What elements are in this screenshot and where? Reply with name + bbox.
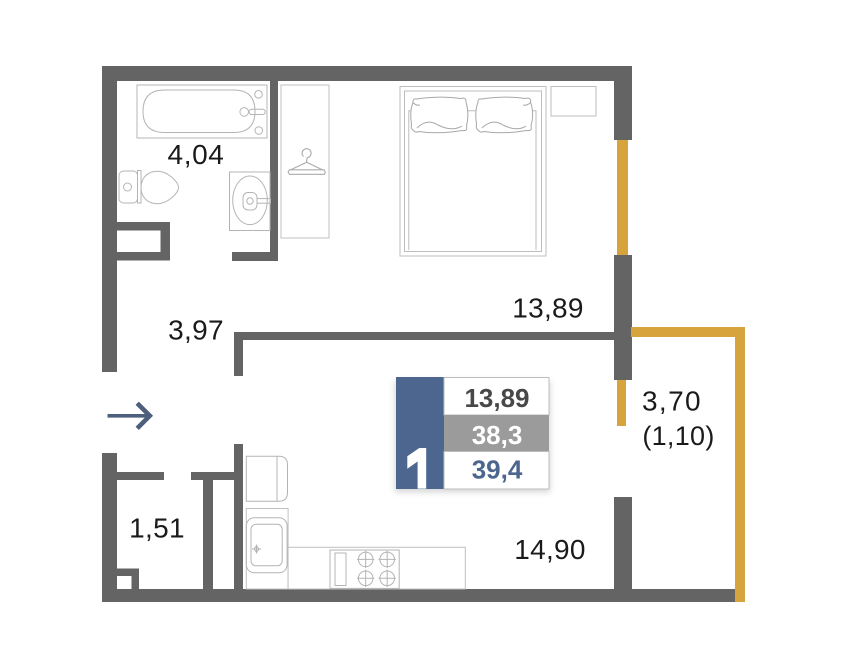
svg-text:(1,10): (1,10) <box>642 421 714 451</box>
svg-text:38,3: 38,3 <box>472 420 523 450</box>
svg-text:3,70: 3,70 <box>642 386 702 417</box>
svg-text:14,90: 14,90 <box>514 534 586 565</box>
svg-text:4,04: 4,04 <box>168 139 225 170</box>
svg-text:1,51: 1,51 <box>129 513 185 544</box>
svg-text:3,97: 3,97 <box>168 315 224 346</box>
svg-text:13,89: 13,89 <box>464 383 529 413</box>
svg-text:39,4: 39,4 <box>472 455 523 485</box>
svg-text:13,89: 13,89 <box>512 293 584 324</box>
